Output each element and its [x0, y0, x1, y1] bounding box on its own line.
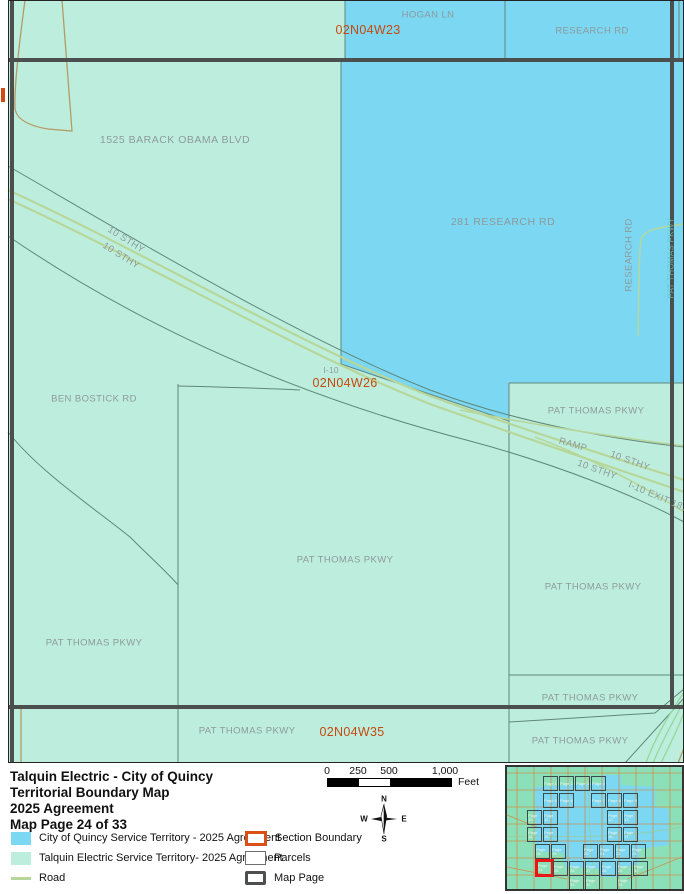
inset-page-cell: Page 21	[599, 844, 614, 859]
inset-page-cell: Page 32	[585, 875, 600, 890]
inset-page-cell: Page 23	[631, 844, 646, 859]
inset-page-cell: Page 15	[543, 827, 558, 842]
road-label: 10 STHY	[609, 449, 652, 473]
road-label: 10 STHY	[576, 458, 619, 482]
territory-map-canvas: HOGAN LNRESEARCH RD02N04W231525 BARACK O…	[0, 0, 684, 763]
road-label: BEN BOSTICK RD	[51, 394, 137, 405]
map-document-page: HOGAN LNRESEARCH RD02N04W231525 BARACK O…	[0, 0, 684, 894]
road-label: RESEARCH RD	[555, 26, 629, 37]
inset-page-cell: Page 16	[607, 827, 622, 842]
road-label: HOGAN LN	[402, 10, 455, 21]
scale-bar: 0 250 500 1,000 Feet	[318, 765, 488, 789]
inset-page-cell: Page 13	[623, 810, 638, 825]
compass-s: S	[381, 835, 386, 844]
inset-page-cell: Page 8	[607, 793, 622, 808]
scale-tick: 500	[380, 765, 398, 777]
section-boundary-swatch	[245, 831, 267, 846]
inset-page-cell: Page 28	[601, 861, 616, 876]
talquin-territory-swatch	[11, 852, 31, 865]
inset-current-page-cell: Page 24	[535, 859, 554, 877]
road-label: I-10 EXIT 181	[627, 480, 684, 515]
legend-label: Map Page	[274, 872, 324, 884]
scale-tick: 250	[349, 765, 367, 777]
section-label: 02N04W26	[313, 376, 378, 390]
road-label: RAMP	[558, 436, 589, 455]
road-label: PAT THOMAS PKWY	[532, 736, 629, 747]
inset-overview-map: Page 1Page 2Page 3Page 4Page 5Page 6Page…	[505, 765, 684, 891]
scale-tick: 1,000	[432, 765, 458, 777]
road-label: 1525 BARACK OBAMA BLVD	[100, 134, 250, 146]
inset-page-cell: Page 10	[527, 810, 542, 825]
inset-page-cell: Page 25	[553, 861, 568, 876]
road-label: PAT THOMAS PKWY	[545, 582, 642, 593]
inset-page-cell: Page 7	[591, 793, 606, 808]
inset-page-cell: Page 30	[633, 861, 648, 876]
road-label: PAT THOMAS PKWY	[542, 693, 639, 704]
north-arrow: N S W E	[360, 793, 408, 845]
inset-page-cell: Page 9	[623, 793, 638, 808]
map-subtitle: Territorial Boundary Map	[10, 785, 213, 801]
legend-label: Road	[39, 872, 65, 884]
legend-label: Parcels	[274, 852, 311, 864]
inset-page-cell: Page 12	[607, 810, 622, 825]
inset-page-cell: Page 11	[543, 810, 558, 825]
section-label: 02N04W23	[336, 23, 401, 37]
inset-page-cell: Page 22	[615, 844, 630, 859]
inset-page-cell: Page 19	[551, 844, 566, 859]
inset-page-cell: Page 4	[591, 776, 606, 791]
inset-page-cell: Page 20	[583, 844, 598, 859]
inset-page-cell: Page 27	[585, 861, 600, 876]
inset-page-cell: Page 31	[569, 875, 584, 890]
title-block: Talquin Electric - City of Quincy Territ…	[10, 769, 213, 833]
scale-unit: Feet	[458, 776, 479, 788]
inset-page-cell: Page 6	[559, 793, 574, 808]
road-label: RESEARCH RD	[624, 218, 635, 292]
inset-page-cell: Page 5	[543, 793, 558, 808]
map-title: Talquin Electric - City of Quincy	[10, 769, 213, 785]
inset-page-cell: Page 18	[535, 844, 550, 859]
road-label: PAT THOMAS PKWY	[46, 638, 143, 649]
map-page-swatch	[245, 871, 266, 885]
inset-page-cell: Page 26	[569, 861, 584, 876]
compass-w: W	[360, 815, 368, 824]
quincy-territory-swatch	[11, 832, 31, 845]
inset-page-cell: Page 29	[617, 861, 632, 876]
inset-page-cell: Page 14	[527, 827, 542, 842]
inset-page-cell: Page 17	[623, 827, 638, 842]
road-label: PAT THOMAS PKWY	[297, 555, 394, 566]
inset-page-cell: Page 2	[559, 776, 574, 791]
scale-tick: 0	[324, 765, 330, 777]
scale-bar-graphic	[327, 778, 452, 787]
inset-page-cell: Page 33	[617, 875, 632, 890]
section-label: 02N04W35	[320, 725, 385, 739]
inset-page-grid: Page 1Page 2Page 3Page 4Page 5Page 6Page…	[507, 767, 682, 889]
road-label: 281 RESEARCH RD	[451, 216, 555, 228]
road-label: I-10	[323, 365, 338, 375]
road-label: PAT THOMAS PKWY	[667, 218, 676, 299]
map-footer: Talquin Electric - City of Quincy Territ…	[0, 763, 684, 894]
compass-star-icon	[371, 804, 397, 834]
road-label: PAT THOMAS PKWY	[548, 406, 645, 417]
compass-e: E	[401, 815, 406, 824]
inset-page-cell: Page 3	[575, 776, 590, 791]
compass-n: N	[381, 795, 387, 804]
map-agreement: 2025 Agreement	[10, 801, 213, 817]
parcels-swatch	[245, 851, 266, 865]
road-swatch	[11, 877, 31, 880]
legend-label: Section Boundary	[275, 832, 362, 844]
road-label: PAT THOMAS PKWY	[199, 726, 296, 737]
map-labels-layer: HOGAN LNRESEARCH RD02N04W231525 BARACK O…	[0, 0, 684, 763]
inset-page-cell: Page 1	[543, 776, 558, 791]
